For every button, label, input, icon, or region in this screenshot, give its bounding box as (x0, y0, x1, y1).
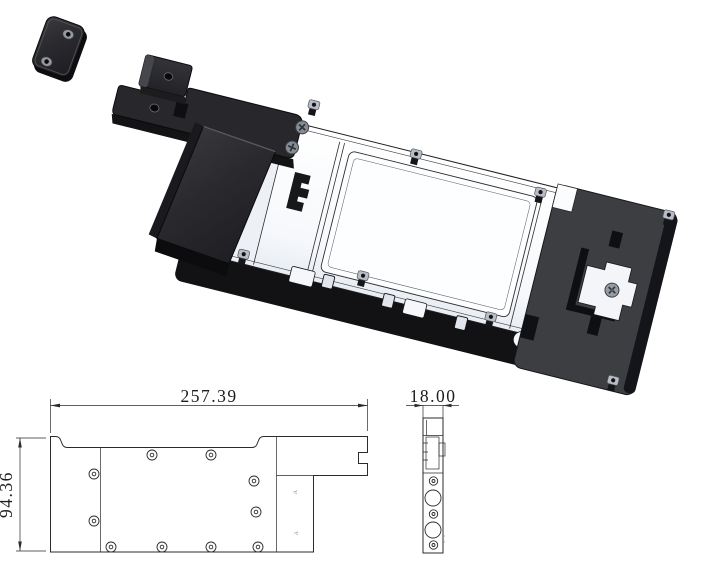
front-view: A A (51, 437, 368, 553)
front-internal-lines (101, 437, 314, 553)
section-mark-upper: A (293, 489, 299, 494)
screw-hole (157, 542, 167, 552)
side-ports (425, 477, 441, 549)
main-assembly (76, 50, 686, 397)
isometric-view (29, 15, 686, 397)
technical-drawing: A A 257.39 18.00 94. (0, 0, 720, 576)
screw-hole (89, 516, 99, 526)
screw-hole (106, 542, 116, 552)
arrowhead-right (358, 404, 368, 408)
section-mark-lower: A (294, 530, 300, 535)
port-hole (425, 490, 441, 506)
arrowhead-bottom (18, 542, 22, 552)
screw-hole (253, 542, 263, 552)
dimension-height-text: 94.36 (0, 471, 16, 518)
dimension-thickness-text: 18.00 (410, 386, 457, 406)
screw-hole (89, 469, 99, 479)
small-mounting-part (29, 15, 90, 85)
screw-hole (251, 507, 261, 517)
side-view (423, 418, 445, 553)
extension-lines (16, 438, 46, 551)
side-terminal-profile (426, 437, 439, 469)
extension-lines (423, 406, 443, 419)
screw-hole (206, 542, 216, 552)
screw-hole (147, 450, 157, 460)
arrowhead-top (18, 438, 22, 448)
arrowhead-left (51, 404, 61, 408)
dimension-height: 94.36 (0, 438, 46, 551)
screw-hole (206, 450, 216, 460)
screw-hole (249, 476, 259, 486)
dimension-thickness: 18.00 (406, 386, 459, 418)
screw-hole (429, 477, 437, 485)
front-screw-holes (89, 450, 263, 552)
port-hole (425, 522, 441, 538)
technical-drawing-page: A A 257.39 18.00 94. (0, 0, 720, 576)
standoff-post (306, 99, 320, 116)
screw-hole (429, 510, 437, 518)
screw-hole (429, 541, 437, 549)
side-terminal-tab (439, 443, 445, 456)
front-outline (51, 437, 368, 553)
dimension-length: 257.39 (51, 386, 368, 433)
dimension-length-text: 257.39 (180, 386, 237, 406)
